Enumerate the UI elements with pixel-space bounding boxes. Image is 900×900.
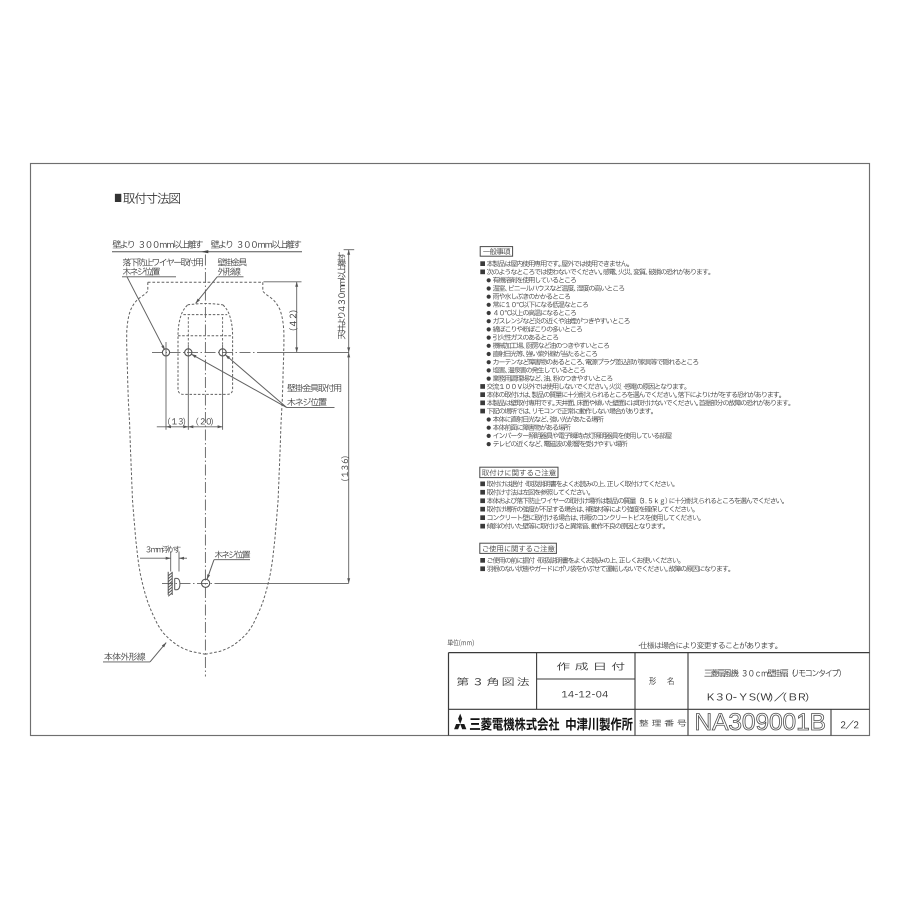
svg-text:NA309001B: NA309001B [695, 709, 827, 736]
